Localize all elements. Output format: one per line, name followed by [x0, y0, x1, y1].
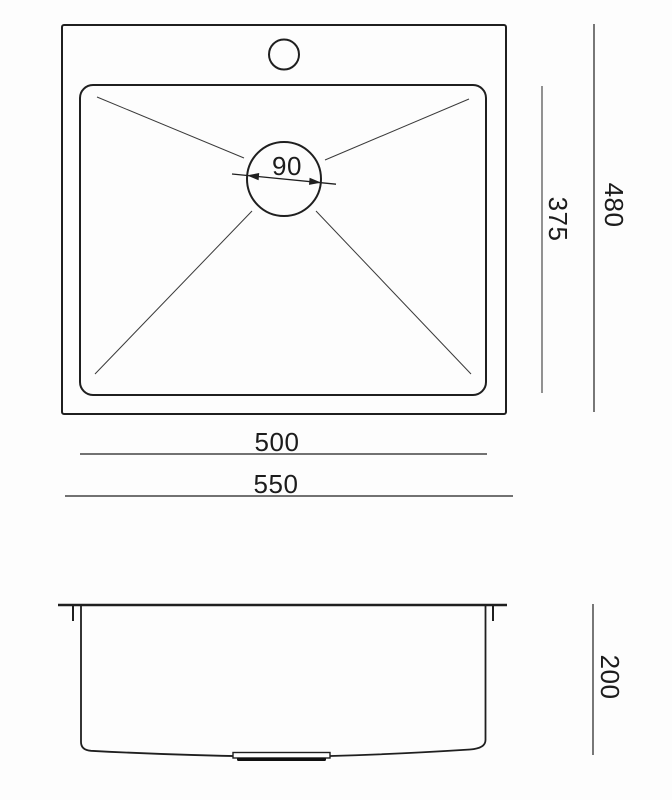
diagonal-top-left	[97, 97, 244, 158]
diagonal-bottom-left	[95, 211, 252, 374]
drain-flange	[233, 753, 330, 762]
faucet-hole-circle	[269, 40, 299, 70]
diagonal-bottom-right	[316, 211, 471, 374]
side-view: 200	[58, 604, 625, 761]
dim-label-550: 550	[254, 469, 299, 499]
bowl-rect	[80, 85, 486, 395]
sink-dimension-drawing: 90 375 480 500 550	[0, 0, 672, 800]
dim-label-200: 200	[595, 655, 625, 700]
outer-rim-rect	[62, 25, 506, 414]
technical-drawing-page: 90 375 480 500 550	[0, 0, 672, 800]
dim-label-375: 375	[543, 197, 573, 242]
top-view: 90 375 480 500 550	[62, 24, 629, 499]
diameter-arrowhead-right	[309, 178, 321, 185]
drain-flange-body	[233, 753, 330, 759]
diameter-arrowhead-left	[247, 173, 259, 180]
drain-flange-lip	[237, 758, 326, 761]
dim-label-90: 90	[272, 151, 302, 181]
diagonal-top-right	[325, 99, 469, 160]
dim-label-500: 500	[255, 427, 300, 457]
bowl-profile	[81, 605, 486, 757]
dim-label-480: 480	[599, 183, 629, 228]
